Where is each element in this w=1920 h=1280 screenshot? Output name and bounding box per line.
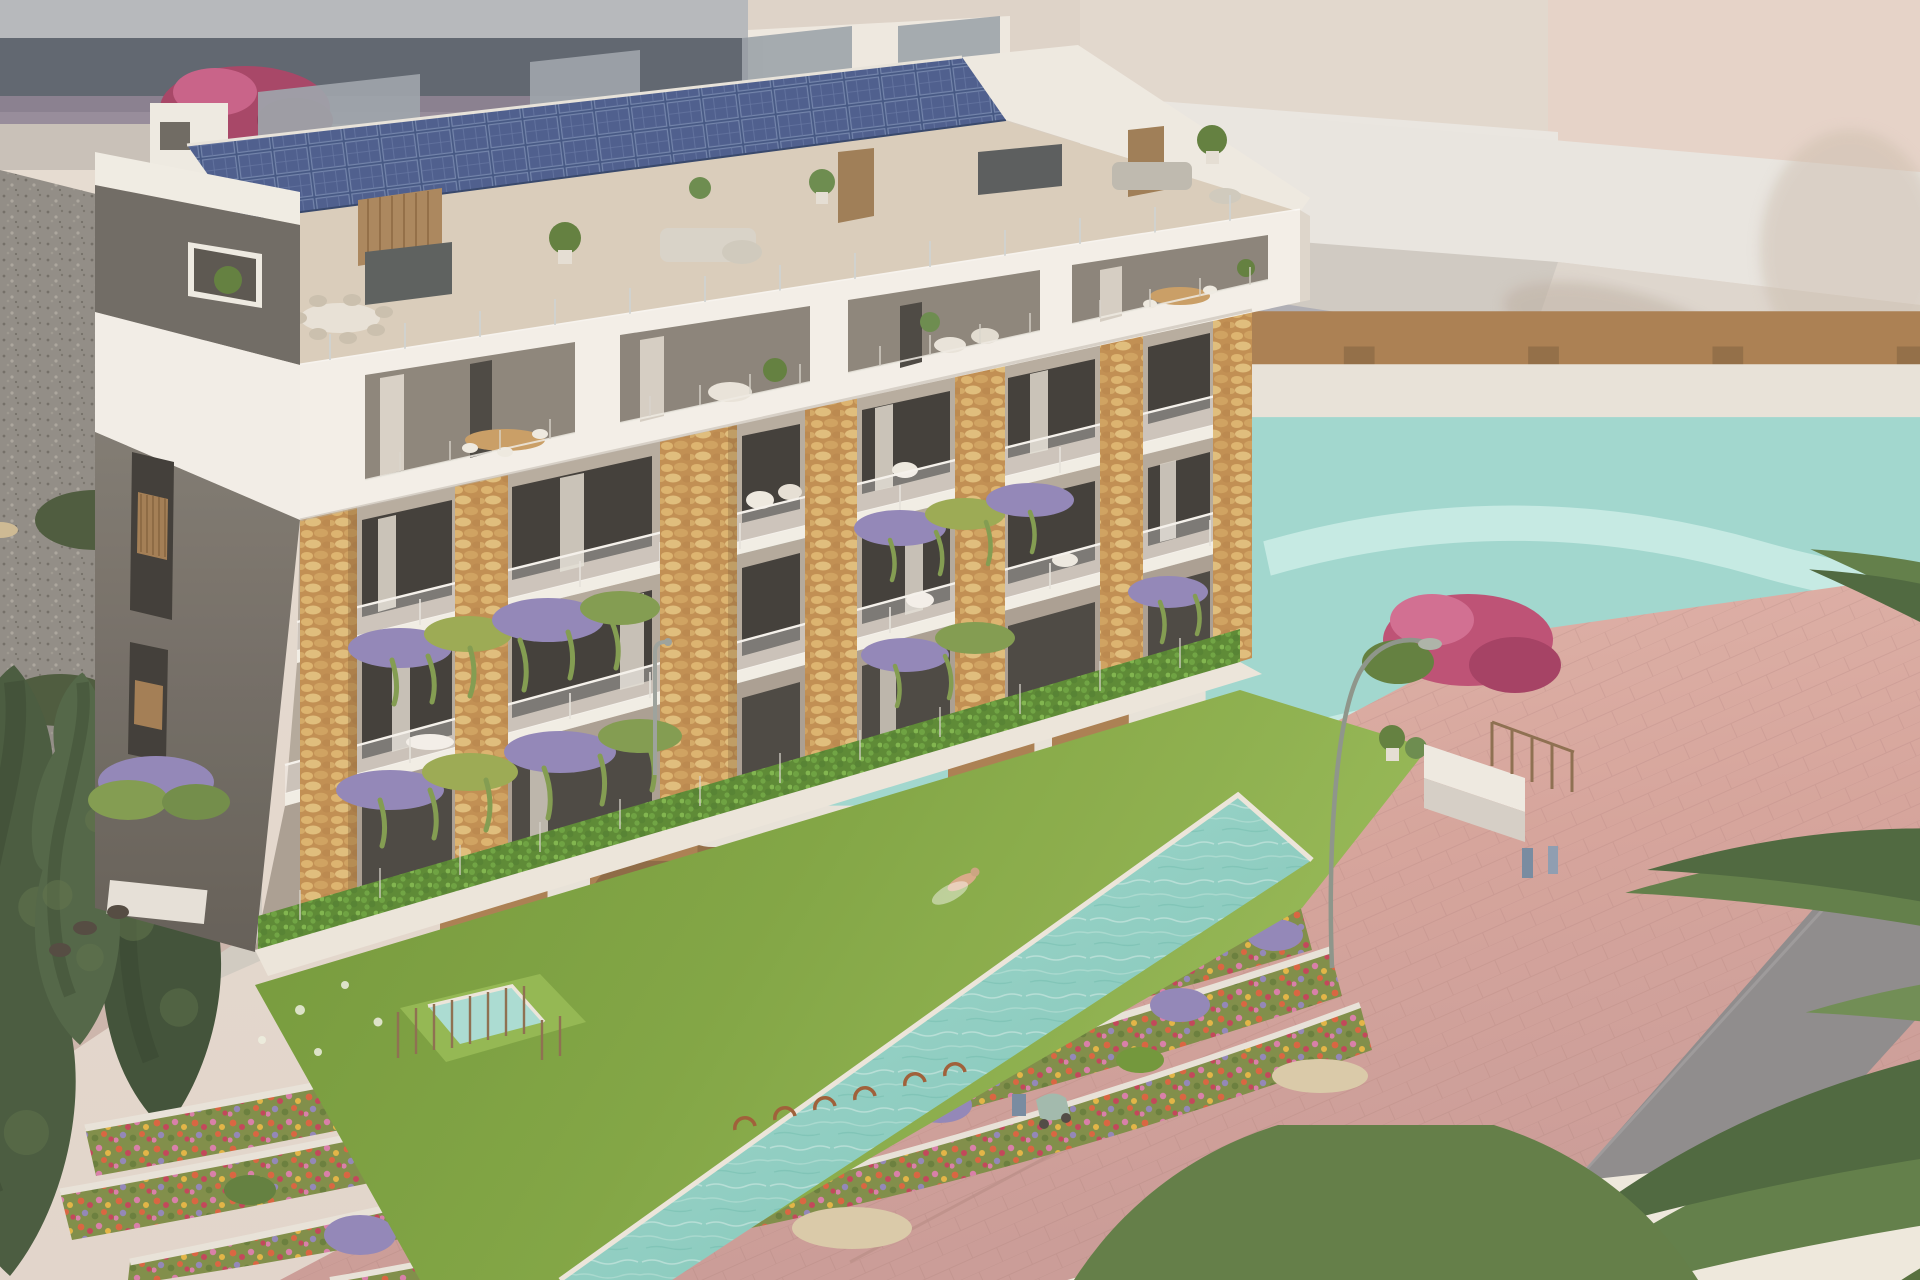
sunlight-wash — [0, 0, 1920, 1280]
rendering-canvas — [0, 0, 1920, 1280]
scene-svg — [0, 0, 1920, 1280]
